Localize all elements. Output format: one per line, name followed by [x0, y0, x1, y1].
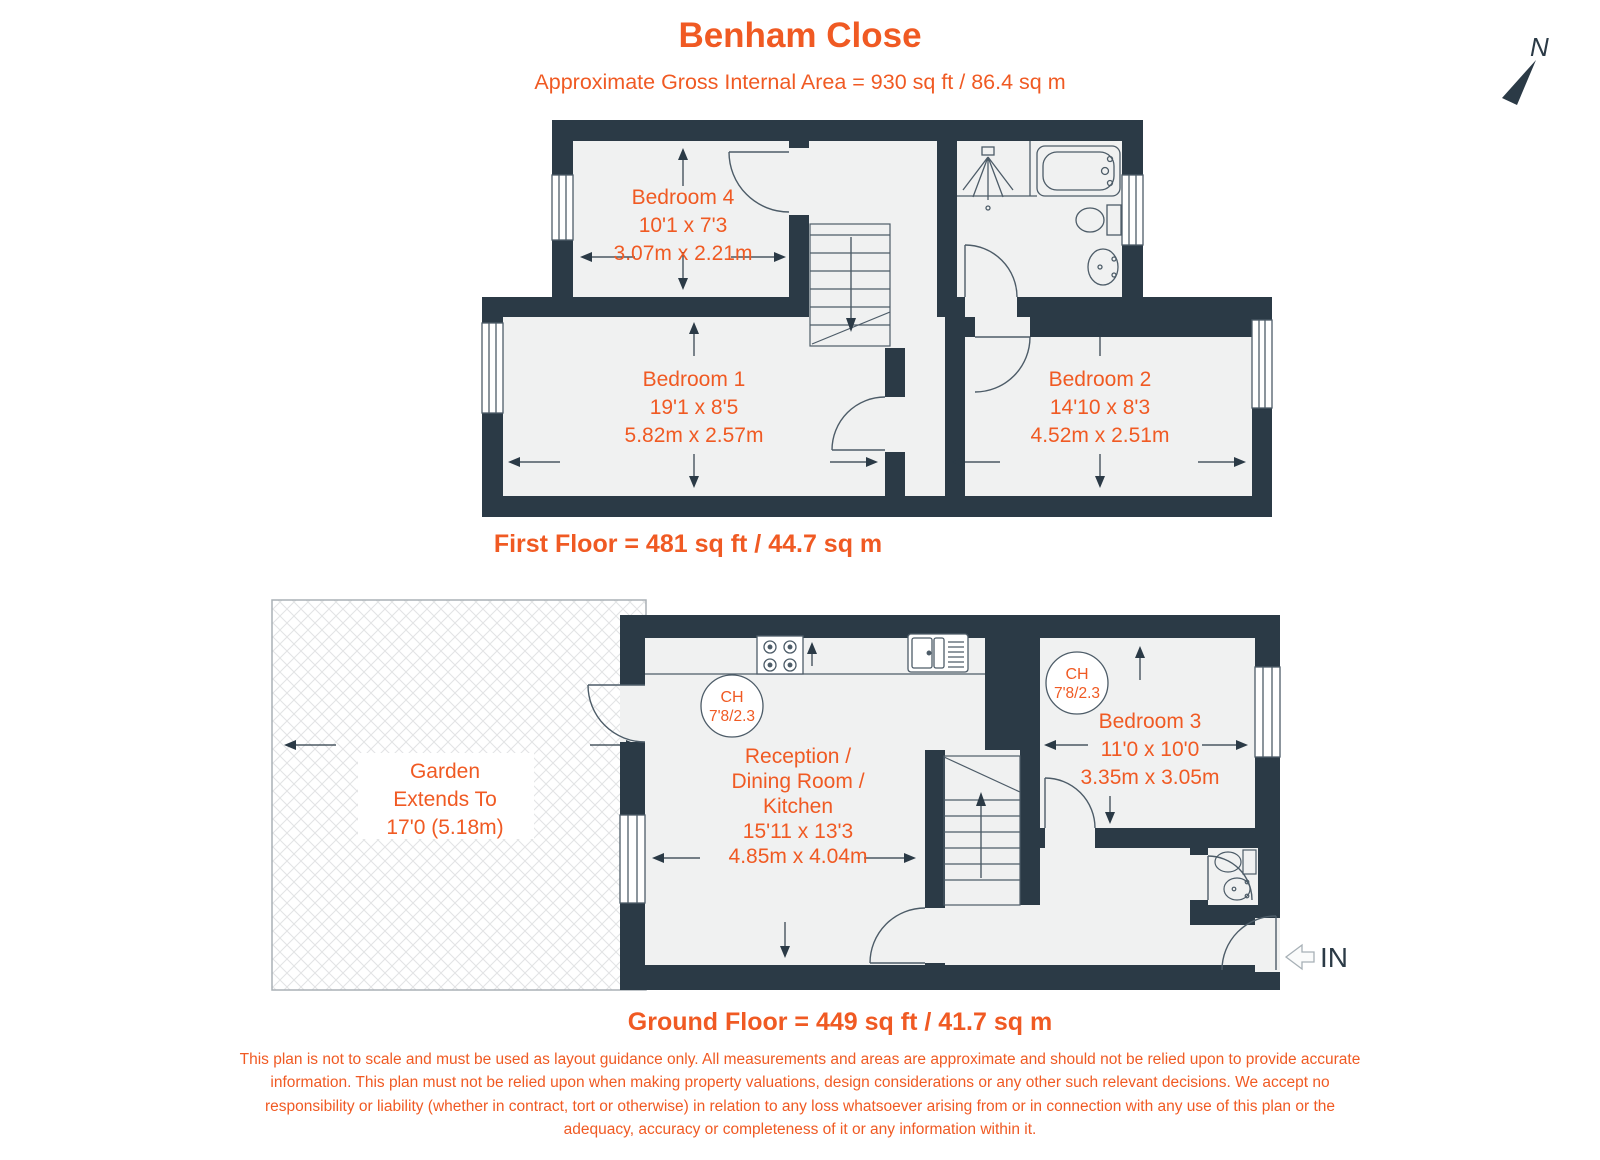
ch-badge-bedroom3: CH 7'8/2.3 [1046, 652, 1108, 714]
garden-line2: Extends To [386, 786, 503, 814]
window-bedroom2 [1252, 320, 1272, 408]
landing-floor [809, 141, 937, 317]
corridor-floor [905, 317, 945, 496]
garden-line1: Garden [386, 758, 503, 786]
bedroom2-label: Bedroom 2 14'10 x 8'3 4.52m x 2.51m [1031, 366, 1170, 450]
bedroom1-label: Bedroom 1 19'1 x 8'5 5.82m x 2.57m [625, 366, 764, 450]
room-size-metric: 3.35m x 3.05m [1081, 764, 1220, 792]
stairwell-floor-gf [945, 750, 1020, 905]
hallway-floor-lower [945, 905, 1190, 965]
page-subtitle: Approximate Gross Internal Area = 930 sq… [534, 70, 1065, 95]
garden-label: Garden Extends To 17'0 (5.18m) [386, 758, 503, 842]
disclaimer-text: This plan is not to scale and must be us… [230, 1048, 1370, 1141]
ch-badge-line1: CH [1065, 666, 1088, 683]
room-size-imperial: 10'1 x 7'3 [614, 212, 753, 240]
window-bedroom3 [1255, 667, 1280, 757]
page-title: Benham Close [678, 16, 921, 56]
ch-badge-reception: CH 7'8/2.3 [701, 675, 763, 737]
room-size-metric: 5.82m x 2.57m [625, 422, 764, 450]
room-name-line2: Dining Room / [729, 769, 868, 794]
entrance-label: IN [1320, 942, 1348, 973]
room-size-metric: 3.07m x 2.21m [614, 240, 753, 268]
room-size-imperial: 15'11 x 13'3 [729, 819, 868, 844]
room-name-line3: Kitchen [729, 794, 868, 819]
room-size-imperial: 11'0 x 10'0 [1081, 736, 1220, 764]
room-name: Bedroom 3 [1081, 708, 1220, 736]
kitchen-sink-icon [908, 634, 968, 672]
ground-floor-caption: Ground Floor = 449 sq ft / 41.7 sq m [628, 1008, 1052, 1037]
ch-badge-line2: 7'8/2.3 [1054, 685, 1100, 702]
room-size-metric: 4.52m x 2.51m [1031, 422, 1170, 450]
room-name: Bedroom 2 [1031, 366, 1170, 394]
floorplan-canvas: CH 7'8/2.3 CH 7'8/2.3 IN N [0, 0, 1600, 1160]
reception-label: Reception / Dining Room / Kitchen 15'11 … [729, 744, 868, 869]
room-name-line1: Reception / [729, 744, 868, 769]
hob-icon [757, 636, 803, 674]
ch-badge-line1: CH [720, 689, 743, 706]
hallway-floor-upper [1040, 848, 1190, 905]
garden-line3: 17'0 (5.18m) [386, 814, 503, 842]
bedroom3-label: Bedroom 3 11'0 x 10'0 3.35m x 3.05m [1081, 708, 1220, 792]
north-arrow-icon: N [1502, 32, 1549, 105]
bedroom4-label: Bedroom 4 10'1 x 7'3 3.07m x 2.21m [614, 184, 753, 268]
ch-badge-line2: 7'8/2.3 [709, 708, 755, 725]
entrance-marker: IN [1286, 942, 1348, 973]
room-size-metric: 4.85m x 4.04m [729, 844, 868, 869]
room-name: Bedroom 4 [614, 184, 753, 212]
window-bathroom [1122, 175, 1143, 245]
north-label: N [1530, 32, 1549, 62]
floorplan-page: CH 7'8/2.3 CH 7'8/2.3 IN N Benham Close … [0, 0, 1600, 1160]
window-reception [620, 815, 645, 903]
first-floor-caption: First Floor = 481 sq ft / 44.7 sq m [494, 530, 882, 559]
room-name: Bedroom 1 [625, 366, 764, 394]
window-bedroom1 [482, 323, 503, 413]
room-size-imperial: 14'10 x 8'3 [1031, 394, 1170, 422]
entrance-arrow-icon [1286, 945, 1314, 969]
window-bedroom4 [552, 175, 573, 240]
room-size-imperial: 19'1 x 8'5 [625, 394, 764, 422]
